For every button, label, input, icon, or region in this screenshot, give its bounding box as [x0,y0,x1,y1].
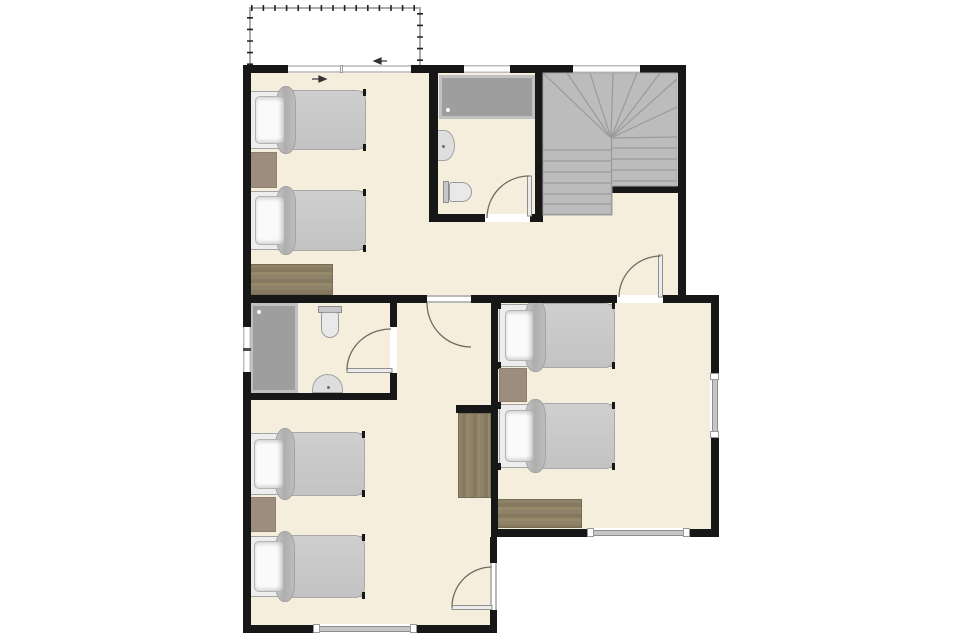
window-glass [319,626,411,632]
bed-post [362,534,365,541]
bed-post [363,189,366,196]
bed-right-1 [499,304,614,367]
bed-post [362,431,365,438]
door-opening-upper-bathroom [485,214,530,222]
bed-pillow [254,541,284,591]
bed-post [363,89,366,96]
door-opening-right-bedroom [617,295,663,303]
bed-post [612,302,615,309]
drain-icon [446,108,450,112]
bed-upper-2 [249,191,365,250]
wall-stub-stairs [612,186,678,193]
window-right-bedroom-east [710,373,719,438]
bed-post [498,463,501,470]
tap-icon [442,145,445,148]
window-cap [710,373,719,380]
bed-post [612,402,615,409]
bed-post [363,144,366,151]
bed-post [612,362,615,369]
bed-middle-2 [248,536,364,597]
rug-upper [249,152,277,188]
dresser-upper [249,264,333,295]
window-cap [410,624,417,633]
wall-stub-wardrobe [456,405,495,413]
shower-middle [250,303,298,393]
window-cap [587,528,594,537]
bed-pillow [505,410,535,463]
bed-duvet [537,303,615,368]
window-right-bedroom-south [587,528,690,537]
bed-post [362,490,365,497]
bed-pillow [254,439,284,490]
wall-mid-bathroom-bottom [243,393,397,400]
bed-post [363,245,366,252]
wall-middle-right-bedroom-divider [491,295,498,537]
bathtub-shower [439,75,535,119]
window-cap [710,431,719,438]
door-opening-middle-bedroom [427,295,471,303]
door-opening-mid-bathroom [390,327,397,373]
bed-post [612,463,615,470]
door-opening-exterior [490,563,497,610]
toilet-bowl-middle [321,312,339,338]
window-upper-bathroom [464,65,510,73]
window-mullion [243,348,251,351]
bed-post [498,302,501,309]
wall-hallway-right [678,65,686,303]
wardrobe-middle [458,413,491,498]
bed-pillow [255,96,285,144]
rug-right [499,368,527,402]
window-cap [683,528,690,537]
tap-icon [327,386,330,389]
slider-divider [340,65,343,73]
window-cap [313,624,320,633]
bed-post [362,592,365,599]
bed-pillow [255,196,285,244]
window-stairs [573,65,640,73]
rug-middle [249,497,276,532]
bed-right-2 [499,404,614,468]
bed-duvet [286,432,365,496]
bed-duvet [287,90,366,150]
balcony-railing [250,8,420,65]
dresser-right [497,499,582,528]
drain-icon [257,310,261,314]
bed-pillow [505,310,535,362]
window-balcony-sliding-door [288,65,411,73]
bed-middle-1 [248,433,364,495]
wall-right-bedroom-top [491,295,719,303]
bed-upper-1 [249,91,365,149]
window-glass [712,379,718,432]
window-glass [593,530,684,536]
bed-duvet [287,190,366,251]
bed-duvet [286,535,365,598]
wall-bathroom-stairs-divider [535,65,543,222]
window-mid-bathroom [243,327,251,372]
toilet-bowl-upper [449,182,472,202]
window-lower-bedroom [313,624,417,633]
bed-post [498,402,501,409]
bed-duvet [537,403,615,469]
balcony-railing-balusters [250,8,420,65]
floor-plan [0,0,960,640]
wall-bedroom-bathroom-divider [429,65,438,222]
